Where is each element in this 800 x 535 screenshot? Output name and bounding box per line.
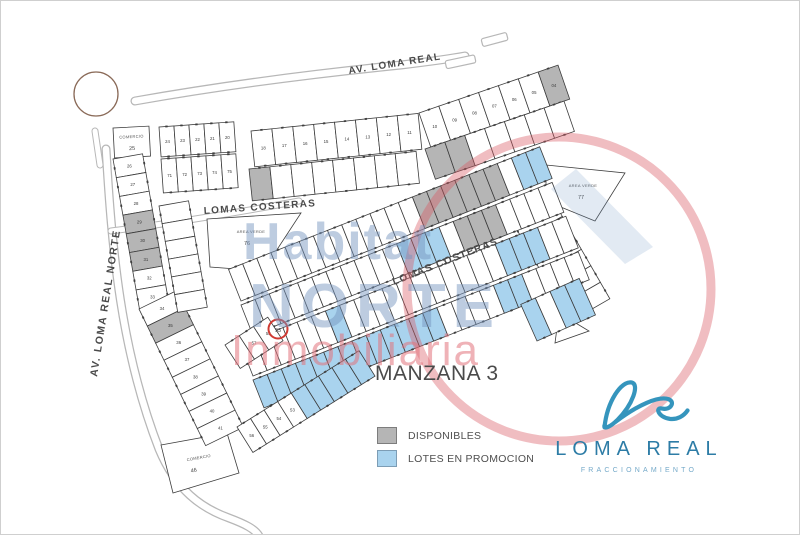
lot-corner-mark <box>324 192 327 194</box>
lot-corner-mark <box>344 120 347 122</box>
logo-name: LOMA REAL <box>547 438 731 461</box>
legend-label-promo: LOTES EN PROMOCION <box>408 453 534 465</box>
lot-cell <box>333 158 357 192</box>
lot-number: 05 <box>532 90 537 95</box>
lot-corner-mark <box>182 154 185 156</box>
lot-number: 16 <box>303 141 308 146</box>
lot-number: 56 <box>249 433 254 438</box>
lot-number: 73 <box>197 171 202 176</box>
lot-corner-mark <box>197 155 200 157</box>
lot-row-topleft_lower: 7172737475 <box>161 153 238 194</box>
lot-number: 04 <box>552 83 557 88</box>
lot-corner-mark <box>365 118 368 120</box>
lot-corner-mark <box>282 197 285 199</box>
lot-number: 18 <box>261 145 266 150</box>
roundabout <box>74 72 118 116</box>
lot-corner-mark <box>260 129 263 131</box>
lot-number: 38 <box>193 374 198 379</box>
lot-number: 36 <box>176 340 181 345</box>
lot-number: 71 <box>167 173 172 178</box>
lot-corner-mark <box>229 187 232 189</box>
lot-cell <box>249 167 273 201</box>
lot-corner-mark <box>200 189 203 191</box>
lot-corner-mark <box>197 153 200 155</box>
legend-label-available: DISPONIBLES <box>408 430 481 442</box>
lot-corner-mark <box>347 156 350 158</box>
lot-number: 11 <box>407 130 412 135</box>
lot-number: 23 <box>180 138 185 143</box>
lot-number: 35 <box>168 323 173 328</box>
lot-corner-mark <box>306 160 309 162</box>
lr-monogram-icon <box>574 375 704 431</box>
lot-corner-mark <box>182 156 185 158</box>
lot-number: 74 <box>212 170 217 175</box>
lot-corner-mark <box>389 152 392 154</box>
lot-corner-mark <box>214 188 217 190</box>
lot-corner-mark <box>210 122 213 124</box>
legend-item-promo: LOTES EN PROMOCION <box>377 450 534 467</box>
lot-number: 55 <box>263 425 268 430</box>
lot-corner-mark <box>281 127 284 129</box>
lot-number: 53 <box>290 408 295 413</box>
lot-corner-mark <box>410 149 413 151</box>
logo-subtitle: FRACCIONAMIENTO <box>547 467 731 474</box>
lot-number: 41 <box>218 425 223 430</box>
site-plan-flyer: AREA VERDE 76 AREA VERDE 77 COMERCIO 25 … <box>0 0 800 535</box>
lot-cell <box>374 154 398 188</box>
lot-corner-mark <box>180 124 183 126</box>
lot-corner-mark <box>406 114 409 116</box>
lot-number: 06 <box>512 97 517 102</box>
lot-number: 39 <box>201 391 206 396</box>
lot-number: 10 <box>432 124 437 129</box>
lot-number: 37 <box>185 357 190 362</box>
lot-number: 15 <box>324 139 329 144</box>
lot-number: 24 <box>165 139 170 144</box>
label-av-loma-real: AV. LOMA REAL <box>348 51 442 77</box>
lot-row-topleft_upper: 2423222120 <box>159 121 236 158</box>
lot-number: 22 <box>195 137 200 142</box>
block-title: MANZANA 3 <box>375 362 499 386</box>
lot-number: 14 <box>344 137 349 142</box>
lot-corner-mark <box>225 121 228 123</box>
lot-number: 30 <box>140 238 145 243</box>
lot-corner-mark <box>383 154 386 156</box>
lot-corner-mark <box>167 157 170 159</box>
lot-number: 27 <box>130 182 135 187</box>
lot-corner-mark <box>363 156 366 158</box>
legend-swatch-promo <box>377 450 397 467</box>
lot-corner-mark <box>261 199 264 201</box>
lot-number: 29 <box>137 219 142 224</box>
lot-corner-mark <box>327 158 330 160</box>
lot-number: 07 <box>492 104 497 109</box>
road-stub-top-b <box>481 32 508 46</box>
lot-corner-mark <box>366 188 369 190</box>
lot-corner-mark <box>167 155 170 157</box>
lot-corner-mark <box>227 153 230 155</box>
lot-corner-mark <box>279 165 282 167</box>
lot-number: 09 <box>452 117 457 122</box>
developer-logo: LOMA REAL FRACCIONAMIENTO <box>547 375 731 474</box>
lot-cell <box>353 156 377 190</box>
lot-corner-mark <box>227 151 230 153</box>
lot-number: 08 <box>472 111 477 116</box>
legend-item-available: DISPONIBLES <box>377 427 534 444</box>
lot-corner-mark <box>404 152 407 154</box>
lot-cell <box>270 165 294 199</box>
lot-corner-mark <box>385 116 388 118</box>
lot-corner-mark <box>408 183 411 185</box>
lot-corner-mark <box>321 160 324 162</box>
comercio-bottom-number: 46 <box>190 468 197 475</box>
lot-number: 33 <box>150 294 155 299</box>
lot-number: 72 <box>182 172 187 177</box>
lot-number: 20 <box>225 135 230 140</box>
lot-corner-mark <box>170 191 173 193</box>
lot-corner-mark <box>258 167 261 169</box>
lot-number: 54 <box>276 416 281 421</box>
comercio-top-number: 25 <box>129 146 135 152</box>
lot-corner-mark <box>212 152 215 154</box>
lot-corner-mark <box>195 123 198 125</box>
lot-corner-mark <box>300 162 303 164</box>
lot-number: 40 <box>210 408 215 413</box>
comercio-lot-25: COMERCIO 25 <box>113 126 151 158</box>
lot-number: 26 <box>127 163 132 168</box>
lot-number: 17 <box>282 143 287 148</box>
legend-swatch-available <box>377 427 397 444</box>
lot-corner-mark <box>165 125 168 127</box>
lot-corner-mark <box>387 186 390 188</box>
lot-corner-mark <box>212 154 215 156</box>
lot-number: 21 <box>210 136 215 141</box>
lot-number: 34 <box>160 306 165 311</box>
lot-corner-mark <box>323 122 326 124</box>
lot-number: 32 <box>147 276 152 281</box>
lot-corner-mark <box>342 158 345 160</box>
watermark-word1: Habitat <box>243 213 433 271</box>
lot-number: 31 <box>144 257 149 262</box>
comercio-lot-46 <box>161 433 239 493</box>
lot-cell <box>395 151 419 185</box>
lot-corner-mark <box>185 190 188 192</box>
lot-corner-mark <box>345 190 348 192</box>
lot-cell <box>312 160 336 194</box>
lot-number: 75 <box>227 169 232 174</box>
lot-number: 12 <box>386 132 391 137</box>
lot-corner-mark <box>302 124 305 126</box>
lot-corner-mark <box>264 165 267 167</box>
lot-cell <box>291 162 315 196</box>
lot-corner-mark <box>303 194 306 196</box>
lot-corner-mark <box>368 154 371 156</box>
legend: DISPONIBLES LOTES EN PROMOCION <box>377 427 534 473</box>
lot-corner-mark <box>285 162 288 164</box>
lot-number: 13 <box>365 134 370 139</box>
lot-number: 28 <box>134 201 139 206</box>
